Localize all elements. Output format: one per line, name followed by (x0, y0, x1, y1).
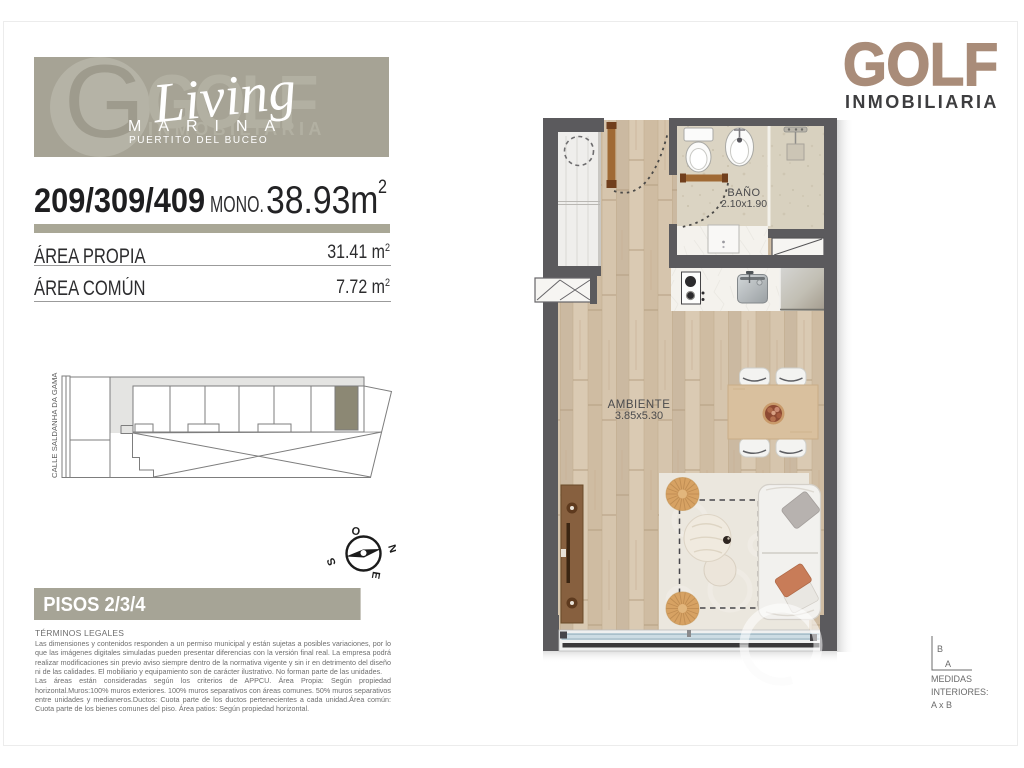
svg-text:S: S (325, 556, 339, 567)
svg-text:E: E (369, 570, 382, 579)
svg-text:2.10x1.90: 2.10x1.90 (721, 198, 767, 210)
svg-text:A: A (945, 659, 951, 669)
svg-text:B: B (937, 644, 943, 654)
svg-text:CALLE SALDANHA DA GAMA: CALLE SALDANHA DA GAMA (50, 372, 59, 478)
svg-text:3.85x5.30: 3.85x5.30 (615, 410, 663, 422)
svg-text:N: N (385, 543, 396, 554)
